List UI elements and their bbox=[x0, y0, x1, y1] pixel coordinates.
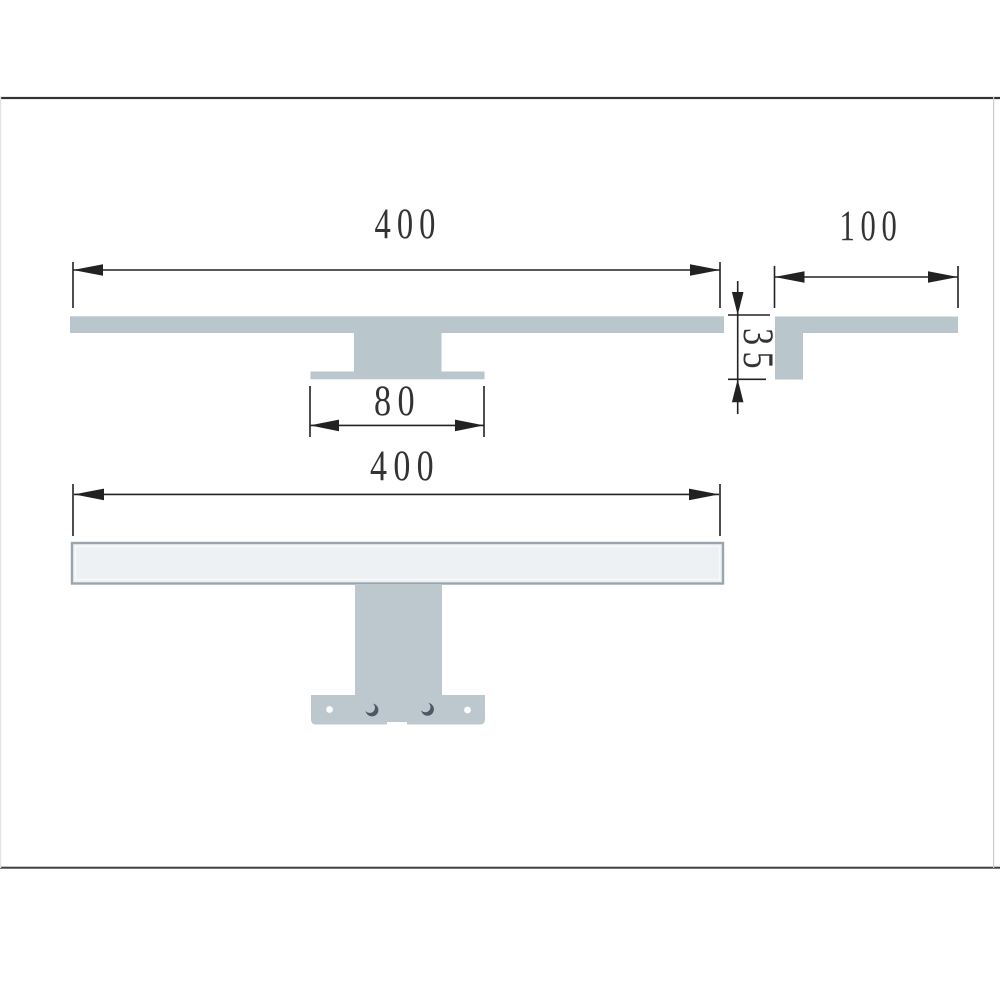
svg-text:35: 35 bbox=[734, 328, 781, 375]
svg-text:400: 400 bbox=[375, 201, 442, 248]
svg-text:400: 400 bbox=[370, 443, 440, 490]
svg-text:100: 100 bbox=[840, 203, 903, 250]
svg-text:80: 80 bbox=[374, 378, 421, 425]
